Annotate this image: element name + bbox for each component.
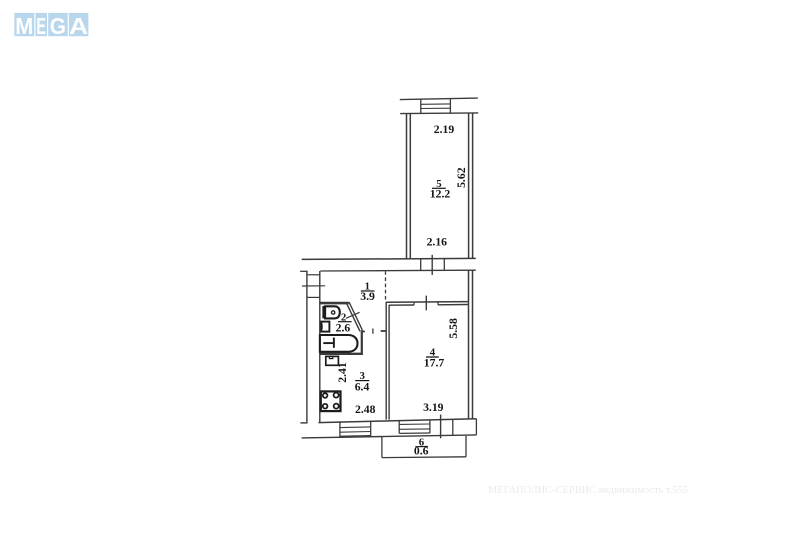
svg-text:3.19: 3.19 [423, 401, 444, 414]
svg-text:2.6: 2.6 [336, 321, 351, 334]
svg-text:0.6: 0.6 [414, 445, 429, 458]
svg-text:2.19: 2.19 [434, 123, 455, 136]
svg-text:12.2: 12.2 [430, 188, 451, 201]
svg-text:МЕГАПОЛИС-СЕРВИС недвижимость: МЕГАПОЛИС-СЕРВИС недвижимость т.555 [488, 485, 688, 496]
svg-text:5.62: 5.62 [455, 167, 468, 188]
svg-text:5.58: 5.58 [447, 318, 460, 339]
svg-text:E: E [36, 13, 46, 39]
svg-text:2.16: 2.16 [427, 236, 448, 249]
svg-text:3.9: 3.9 [360, 290, 375, 303]
svg-text:17.7: 17.7 [424, 357, 445, 370]
svg-text:2.41: 2.41 [336, 362, 349, 383]
svg-text:2.48: 2.48 [355, 403, 376, 416]
svg-text:G: G [50, 13, 66, 39]
svg-text:6.4: 6.4 [355, 381, 370, 394]
svg-text:A: A [69, 13, 88, 39]
svg-text:M: M [15, 13, 33, 39]
